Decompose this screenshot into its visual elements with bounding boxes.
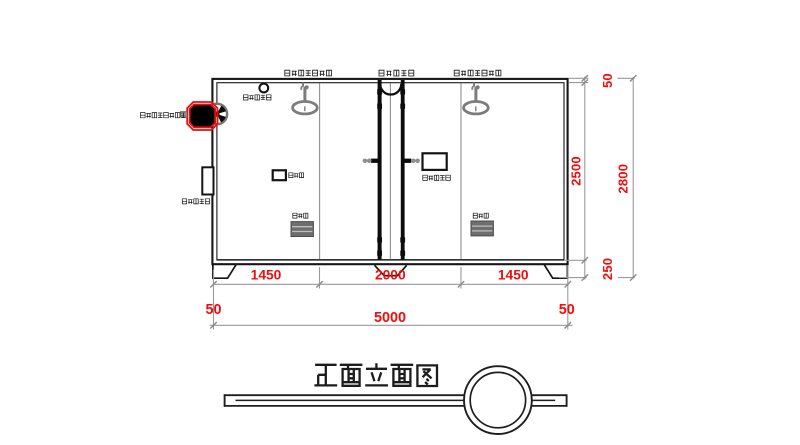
svg-text:50: 50 xyxy=(559,302,575,318)
svg-text:2000: 2000 xyxy=(375,268,406,283)
svg-text:1450: 1450 xyxy=(251,267,282,282)
svg-text:50: 50 xyxy=(600,73,615,88)
svg-text:250: 250 xyxy=(600,258,615,280)
svg-text:50: 50 xyxy=(205,302,221,318)
svg-text:2500: 2500 xyxy=(568,156,583,186)
svg-text:2800: 2800 xyxy=(615,164,630,194)
svg-text:1450: 1450 xyxy=(498,267,529,282)
svg-text:5000: 5000 xyxy=(374,310,406,326)
